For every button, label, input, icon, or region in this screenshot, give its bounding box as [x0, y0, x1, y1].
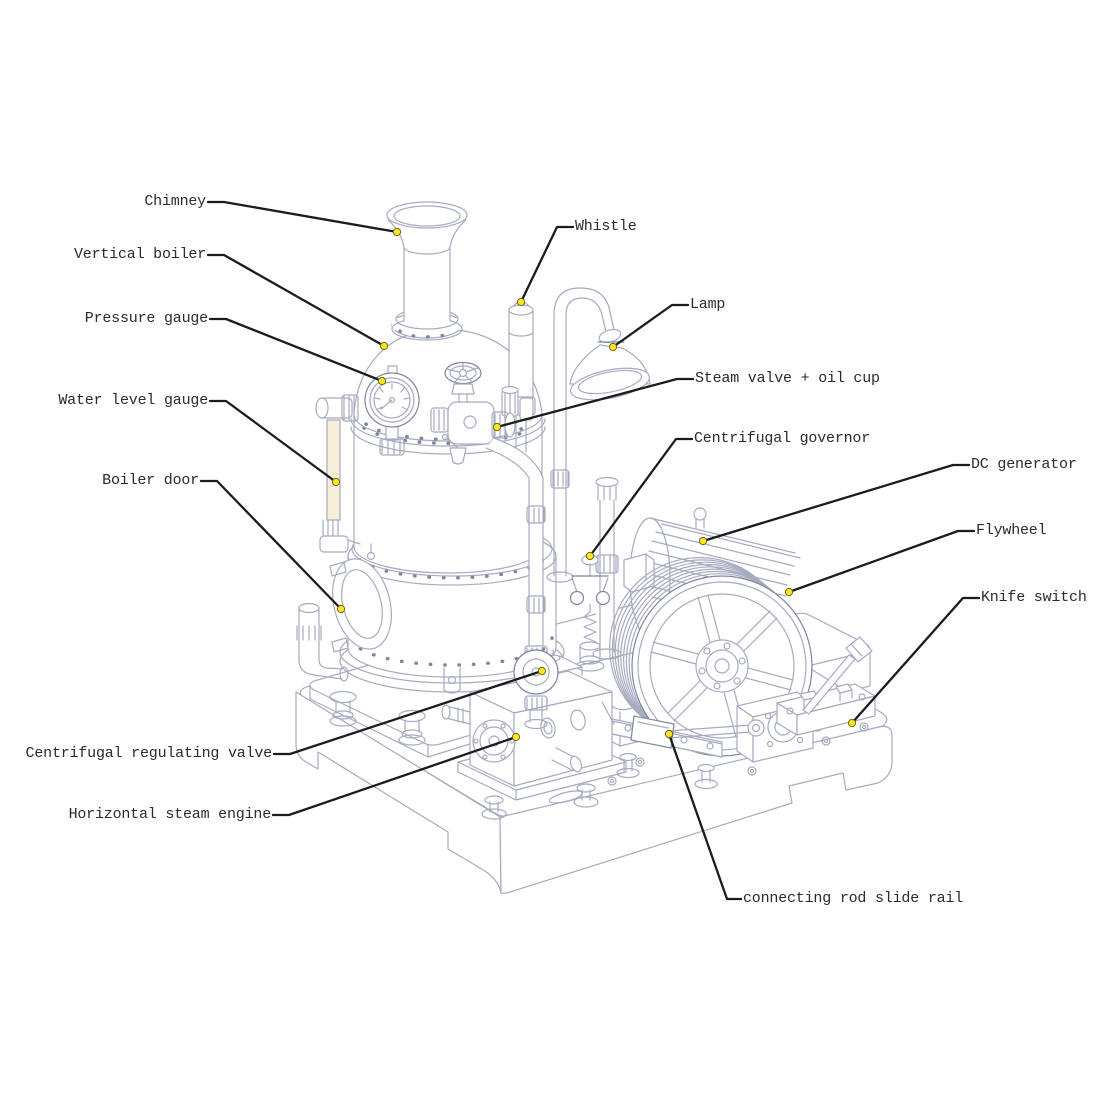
label-centrifugal-regulating-valve: Centrifugal regulating valve — [26, 744, 272, 764]
leader-boiler-door — [201, 481, 341, 609]
leader-chimney — [208, 202, 397, 232]
label-horizontal-steam-engine: Horizontal steam engine — [69, 805, 271, 825]
callout-dots — [332, 228, 855, 740]
leader-knife-switch — [852, 598, 979, 723]
label-vertical-boiler: Vertical boiler — [74, 245, 206, 265]
leader-steam-valve-oil-cup — [497, 379, 693, 427]
label-centrifugal-governor: Centrifugal governor — [694, 429, 870, 449]
label-whistle: Whistle — [575, 217, 637, 237]
label-connecting-rod-slide-rail: connecting rod slide rail — [743, 889, 963, 909]
leader-flywheel — [789, 531, 974, 592]
label-boiler-door: Boiler door — [102, 471, 199, 491]
leader-water-level-gauge — [210, 401, 336, 482]
label-knife-switch: Knife switch — [981, 588, 1087, 608]
diagram-page: Chimney Vertical boiler Pressure gauge W… — [0, 0, 1100, 1100]
leader-whistle — [521, 227, 573, 302]
callout-leader-lines — [0, 0, 1100, 1100]
label-pressure-gauge: Pressure gauge — [85, 309, 208, 329]
label-steam-valve-oil-cup: Steam valve + oil cup — [695, 369, 880, 389]
label-flywheel: Flywheel — [976, 521, 1046, 541]
leader-connecting-rod-slide-rail — [669, 734, 741, 899]
leader-dc-generator — [703, 465, 969, 541]
label-water-level-gauge: Water level gauge — [58, 391, 208, 411]
leader-centrifugal-governor — [590, 439, 692, 556]
label-lamp: Lamp — [690, 295, 725, 315]
leader-lamp — [613, 305, 688, 347]
label-chimney: Chimney — [144, 192, 206, 212]
leader-pressure-gauge — [210, 319, 382, 381]
label-dc-generator: DC generator — [971, 455, 1077, 475]
leader-vertical-boiler — [208, 255, 384, 346]
